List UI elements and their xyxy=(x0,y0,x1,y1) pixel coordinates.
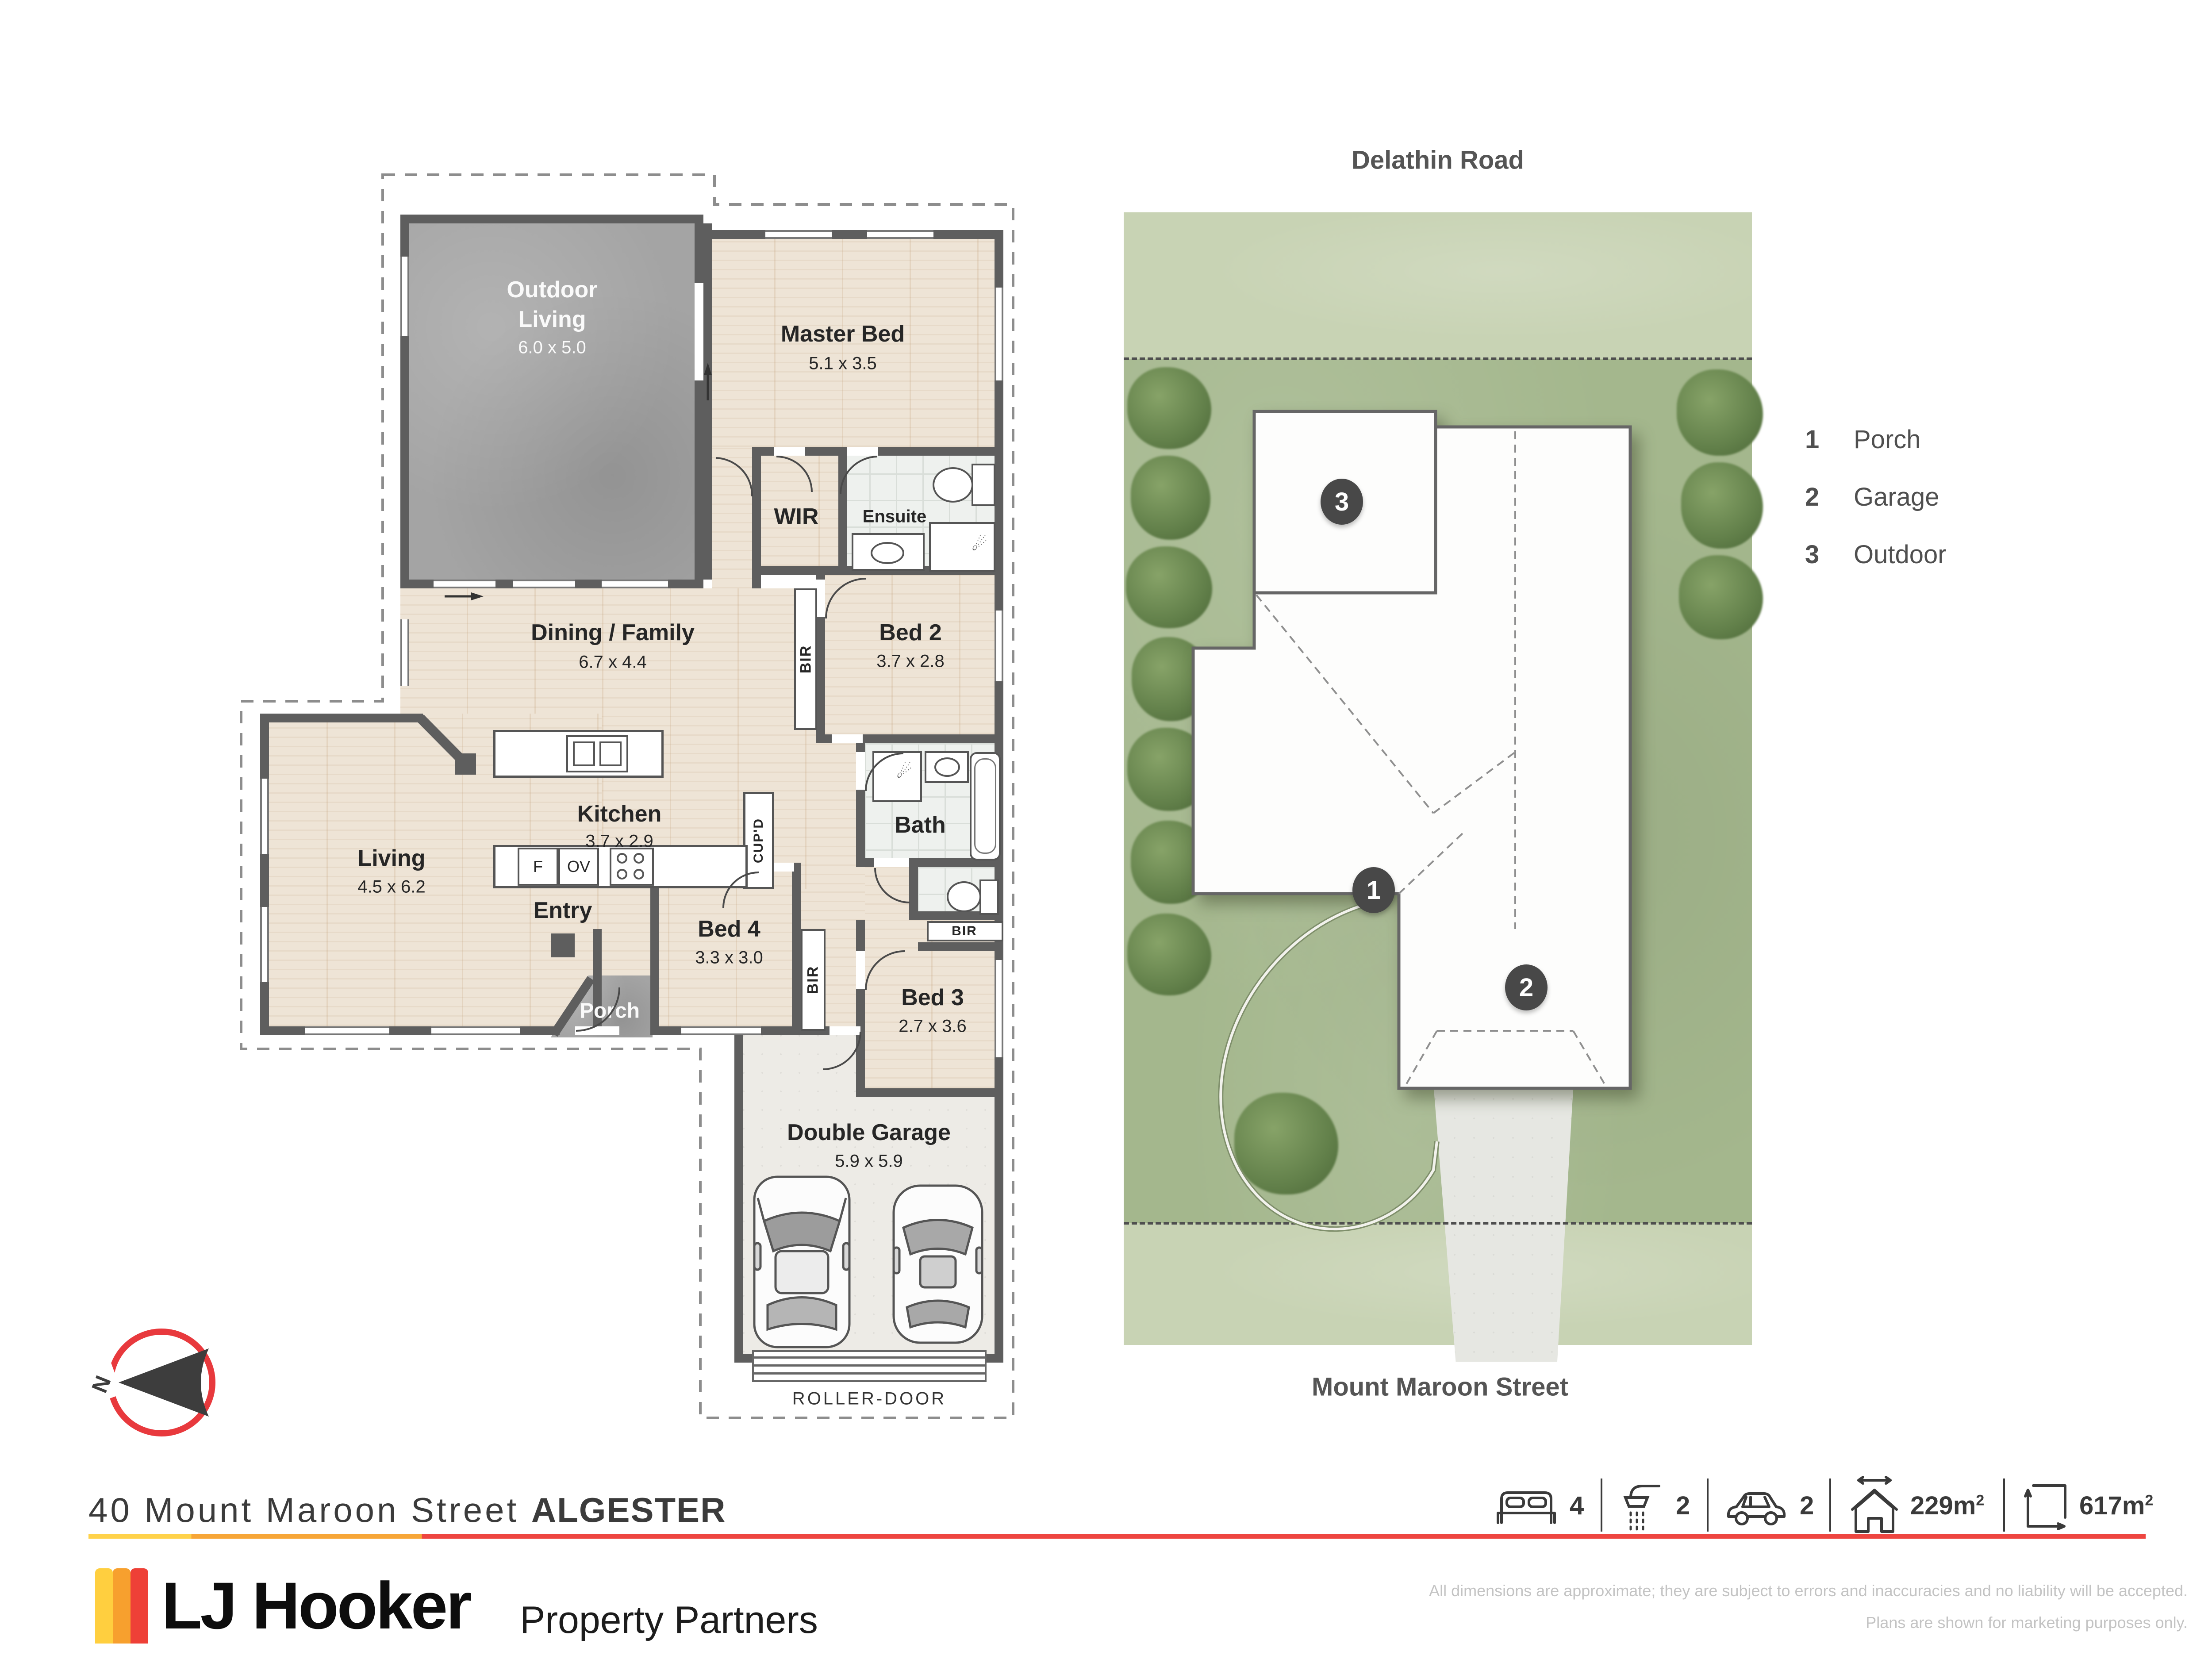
brand-rule xyxy=(88,1534,2146,1539)
cooktop-burner xyxy=(634,853,644,864)
site-marker-1: 1 xyxy=(1352,867,1395,913)
site-marker-3: 3 xyxy=(1321,479,1363,525)
room-label-kitchen: Kitchen xyxy=(577,801,662,827)
wall-segment xyxy=(703,223,712,580)
compass: N xyxy=(81,1332,212,1433)
legend-label-porch: Porch xyxy=(1854,425,1921,454)
cooktop xyxy=(610,848,654,886)
land-area-sup: 2 xyxy=(2145,1492,2153,1509)
room-label-bed4: Bed 4 xyxy=(698,916,760,942)
street-label-bottom: Mount Maroon Street xyxy=(1312,1372,1568,1402)
logo-stripe-orange xyxy=(113,1568,131,1644)
roller-door xyxy=(752,1350,987,1382)
room-dims-garage: 5.9 x 5.9 xyxy=(835,1152,902,1171)
property-address: 40 Mount Maroon Street ALGESTER xyxy=(88,1490,726,1530)
legend-label-outdoor: Outdoor xyxy=(1854,540,1947,569)
land-area-icon xyxy=(2021,1477,2072,1534)
door-opening xyxy=(774,447,805,456)
room-label-entry: Entry xyxy=(534,897,592,924)
floorplan-page: ☄ ☄ Outdoor Living 6.0 x 5.0 Master Bed … xyxy=(0,0,2212,1659)
wall-segment xyxy=(695,223,703,588)
shower-head-icon: ☄ xyxy=(896,762,912,782)
lot-boundary-rear xyxy=(1124,1222,1752,1225)
wall-segment xyxy=(260,714,269,1035)
wc-toilet-tank xyxy=(979,879,999,915)
window xyxy=(681,1026,761,1035)
legend-num-2: 2 xyxy=(1805,482,1819,512)
brand-name: LJ Hooker xyxy=(161,1567,470,1644)
wall-segment xyxy=(650,863,659,1035)
brand-subname: Property Partners xyxy=(520,1598,818,1642)
door-opening xyxy=(856,752,865,790)
address-street: 40 Mount Maroon Street xyxy=(88,1490,519,1529)
window xyxy=(305,1026,389,1035)
room-label-ensuite: Ensuite xyxy=(863,507,926,527)
oven-label: OV xyxy=(567,857,590,876)
residence-label-1: Single Storey xyxy=(1348,758,1518,789)
robe-label-bed4: BIR xyxy=(805,966,822,995)
door-opening xyxy=(816,580,825,617)
wall-segment xyxy=(838,456,847,575)
cooktop-burner xyxy=(617,853,627,864)
cooktop-burner xyxy=(634,869,644,879)
room-dims-bed2: 3.7 x 2.8 xyxy=(876,652,944,672)
wall-segment xyxy=(909,867,918,920)
sliding-door xyxy=(434,580,495,588)
land-area-value: 617m2 xyxy=(2079,1491,2153,1521)
baths-count: 2 xyxy=(1676,1491,1690,1521)
road-verge-bottom xyxy=(1124,1223,1752,1345)
wall-segment xyxy=(865,1088,1003,1097)
room-label-master: Master Bed xyxy=(781,321,905,347)
tree xyxy=(1681,462,1763,549)
window xyxy=(400,257,409,336)
tree xyxy=(1131,456,1210,540)
logo-stripe-yellow xyxy=(95,1568,113,1644)
compass-arrow xyxy=(119,1348,209,1417)
room-dims-dining: 6.7 x 4.4 xyxy=(579,653,646,672)
disclaimer-line-2: Plans are shown for marketing purposes o… xyxy=(1126,1607,2188,1639)
tree xyxy=(1127,914,1211,995)
room-label-bed2: Bed 2 xyxy=(879,619,942,646)
bed-icon xyxy=(1495,1486,1557,1526)
room-dims-living: 4.5 x 6.2 xyxy=(357,877,425,897)
room-label-wir: WIR xyxy=(774,503,818,530)
outdoor-living-floor xyxy=(400,215,703,588)
road-verge-top xyxy=(1124,212,1752,359)
yard-tree xyxy=(1234,1093,1338,1194)
window xyxy=(995,960,1003,1057)
land-area-number: 617m xyxy=(2079,1491,2145,1520)
brand-logo: LJ Hooker Property Partners xyxy=(95,1564,980,1648)
window xyxy=(995,611,1003,681)
tree xyxy=(1127,367,1211,449)
window xyxy=(431,1026,520,1035)
island-sink-basin xyxy=(599,741,622,766)
house-area-icon xyxy=(1847,1474,1902,1536)
room-dims-master: 5.1 x 3.5 xyxy=(809,354,876,374)
ensuite-toilet-bowl xyxy=(933,467,973,503)
island-sink-basin xyxy=(573,741,595,766)
wall-segment xyxy=(792,863,801,1035)
residence-label-2: Residence xyxy=(1367,798,1500,829)
room-label-dining: Dining / Family xyxy=(531,619,695,646)
shower-icon xyxy=(1618,1480,1667,1532)
legend-num-3: 3 xyxy=(1805,540,1819,569)
legend-num-1: 1 xyxy=(1805,425,1819,454)
stat-divider xyxy=(1707,1479,1709,1532)
door-opening xyxy=(575,1026,619,1035)
bath-basin xyxy=(934,757,960,777)
tree xyxy=(1132,637,1210,721)
wall-segment xyxy=(400,215,703,223)
window xyxy=(260,907,269,982)
stat-divider xyxy=(2003,1479,2005,1532)
wall-segment xyxy=(856,920,865,1097)
car-icon xyxy=(1723,1486,1790,1528)
room-dims-bed3: 2.7 x 3.6 xyxy=(899,1017,966,1037)
room-label-garage: Double Garage xyxy=(787,1119,951,1146)
cupboard-label: CUP'D xyxy=(751,818,766,863)
room-label-bath: Bath xyxy=(895,812,946,838)
address-suburb: ALGESTER xyxy=(531,1490,726,1529)
cooktop-burner xyxy=(617,869,627,879)
door-opening xyxy=(832,734,863,743)
house-area-number: 229m xyxy=(1910,1491,1976,1520)
wall-segment xyxy=(918,942,1003,951)
wall-segment xyxy=(708,230,1003,239)
house-area-value: 229m2 xyxy=(1910,1491,1984,1521)
robe-label-bed3: BIR xyxy=(952,924,977,939)
room-label-outdoor2: Living xyxy=(518,306,586,333)
window xyxy=(260,779,269,854)
shower-head-icon: ☄ xyxy=(972,534,987,555)
room-dims-bed4: 3.3 x 3.0 xyxy=(695,948,763,968)
room-label-outdoor: Outdoor xyxy=(507,276,597,303)
tree xyxy=(1131,821,1211,904)
tree xyxy=(1127,728,1211,811)
legend: 1 Porch 2 Garage 3 Outdoor xyxy=(1805,425,2026,575)
wc-toilet-bowl xyxy=(947,881,981,912)
house-area-sup: 2 xyxy=(1976,1492,1984,1509)
tree xyxy=(1677,369,1763,456)
sliding-door-opening xyxy=(695,283,703,380)
stat-divider xyxy=(1829,1479,1831,1532)
window xyxy=(867,230,933,239)
disclaimer-line-1: All dimensions are approximate; they are… xyxy=(1126,1575,2188,1607)
ensuite-basin xyxy=(871,542,904,564)
living-corner-column xyxy=(455,753,476,775)
room-dims-kitchen: 3.7 x 2.9 xyxy=(585,832,653,852)
fridge-label: F xyxy=(533,857,543,876)
sliding-door xyxy=(602,580,668,588)
entry-column xyxy=(551,933,575,957)
robe-label-bed2: BIR xyxy=(798,645,815,674)
window xyxy=(400,619,409,686)
legend-label-garage: Garage xyxy=(1854,482,1939,512)
property-stats: 4 2 2 229m xyxy=(1495,1473,2159,1540)
disclaimer: All dimensions are approximate; they are… xyxy=(1126,1575,2188,1639)
room-label-bed3: Bed 3 xyxy=(901,984,964,1011)
ensuite-toilet-tank xyxy=(972,464,995,506)
cars-count: 2 xyxy=(1800,1491,1814,1521)
door-opening xyxy=(847,447,878,456)
window xyxy=(995,288,1003,380)
lot-boundary-front xyxy=(1124,357,1752,360)
door-opening xyxy=(856,951,865,989)
room-label-porch: Porch xyxy=(580,999,640,1023)
wall-segment xyxy=(260,714,423,722)
hall-to-master-floor xyxy=(712,447,752,588)
window xyxy=(765,230,832,239)
beds-count: 4 xyxy=(1570,1491,1584,1521)
door-opening xyxy=(874,858,909,867)
site-marker-2: 2 xyxy=(1505,964,1548,1010)
roller-door-label: ROLLER-DOOR xyxy=(792,1389,946,1409)
road-label-top: Delathin Road xyxy=(1352,146,1524,175)
sliding-door xyxy=(513,580,575,588)
door-opening xyxy=(829,1026,860,1035)
room-label-living: Living xyxy=(357,845,425,872)
logo-stripe-red xyxy=(131,1568,148,1644)
bathtub-inner xyxy=(974,758,996,854)
compass-ring xyxy=(111,1332,212,1433)
compass-north-label: N xyxy=(87,1372,115,1396)
tree xyxy=(1679,555,1763,639)
tree xyxy=(1126,546,1212,628)
room-dims-outdoor: 6.0 x 5.0 xyxy=(518,338,586,358)
stat-divider xyxy=(1601,1479,1602,1532)
wall-segment xyxy=(734,1026,743,1363)
